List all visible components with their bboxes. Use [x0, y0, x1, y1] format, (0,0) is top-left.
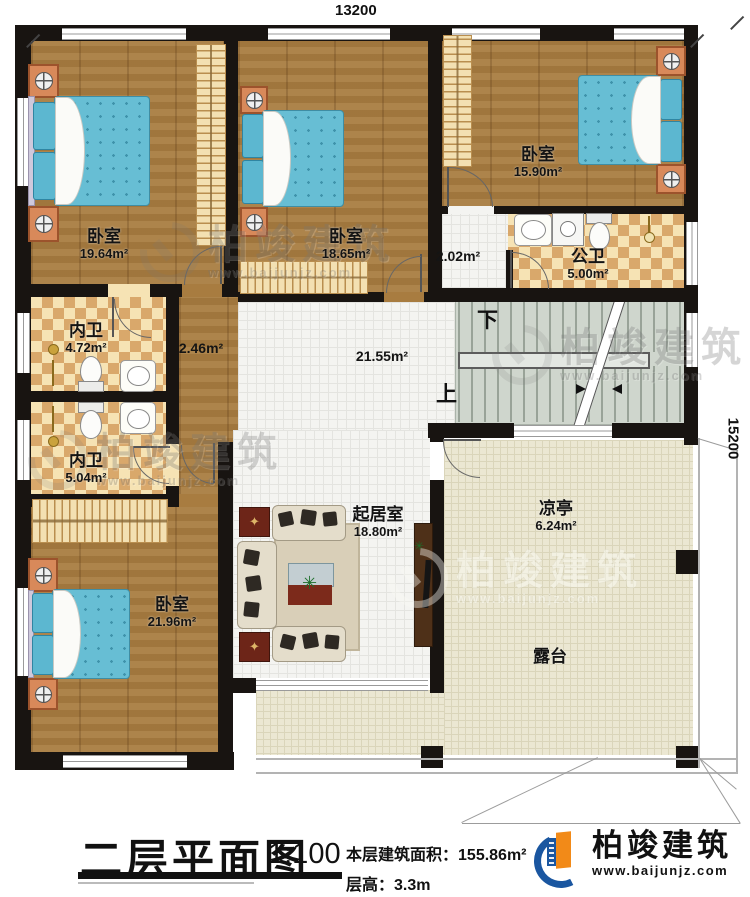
towel-ring — [48, 344, 59, 355]
title-leader-line — [461, 757, 598, 823]
sliding-door — [256, 680, 428, 691]
wall — [612, 423, 684, 438]
towel-bar — [52, 406, 54, 432]
bed-pillow — [32, 593, 54, 633]
title-underline-light — [78, 882, 254, 884]
wall — [230, 678, 256, 693]
railing-line — [256, 772, 738, 774]
window — [268, 28, 390, 40]
wardrobe — [443, 35, 472, 167]
toilet — [78, 381, 104, 392]
pendant-light — [644, 232, 655, 243]
wardrobe — [32, 499, 168, 543]
railing-line — [256, 758, 738, 760]
wall — [15, 391, 166, 402]
room-label-bedroom3: 卧室15.90m² — [514, 146, 562, 179]
door-gap — [179, 494, 218, 507]
sofa — [237, 541, 277, 629]
bed-pillow — [242, 114, 264, 158]
wardrobe — [240, 261, 368, 294]
nightstand — [28, 558, 58, 592]
brand-name: 柏竣建筑 — [592, 830, 732, 863]
title-leader-line — [462, 823, 740, 824]
bed-pillow — [32, 635, 54, 675]
plant-icon: ✳ — [302, 574, 317, 592]
floor-area-label: 本层建筑面积：155.86m² — [346, 841, 527, 865]
pillar — [676, 746, 698, 768]
dimension-tick — [730, 16, 744, 30]
railing-line — [736, 450, 738, 772]
nightstand — [28, 678, 58, 710]
room-label-ensuite2: 内卫5.04m² — [65, 452, 106, 485]
stair-break-arrow-right — [612, 384, 622, 394]
area-label-vestibule: 2.02m² — [436, 248, 480, 264]
wall — [224, 25, 238, 297]
stair-break-arrow-left — [576, 384, 586, 394]
floor-plan-page: ✦ ✦ ✳ ✳ 柏竣建筑 www.baijunjz.com 柏竣建筑 www.b… — [0, 0, 750, 897]
title-leader-line — [699, 758, 741, 824]
floor-height-label: 层高：3.3m — [346, 871, 430, 895]
brand-logo-icon — [534, 830, 586, 880]
wardrobe — [196, 44, 226, 246]
dimension-top: 13200 — [335, 2, 377, 19]
stair-up-label: 上 — [436, 378, 457, 408]
washing-machine — [552, 213, 584, 246]
door-gap — [108, 284, 150, 297]
bed-pillow — [660, 121, 682, 162]
brand-website: www.baijunjz.com — [592, 863, 732, 878]
title-underline — [78, 872, 342, 879]
room-label-ensuite1: 内卫4.72m² — [65, 322, 106, 355]
brand-logo: 柏竣建筑 www.baijunjz.com — [534, 830, 732, 880]
bed-pillow — [33, 152, 56, 200]
wall — [430, 425, 444, 442]
toilet — [80, 410, 102, 439]
stair-handrail — [458, 352, 650, 369]
towel-bar — [52, 360, 54, 386]
window — [62, 28, 186, 40]
window — [614, 28, 684, 40]
room-label-living-room: 起居室18.80m² — [353, 506, 404, 539]
bed-pillow — [242, 160, 264, 204]
area-label-hall: 21.55m² — [356, 348, 408, 364]
sofa — [272, 626, 346, 662]
vestibule-floor — [442, 206, 508, 288]
nightstand — [656, 164, 686, 194]
door-gap — [448, 206, 494, 214]
pillar — [421, 746, 443, 768]
towel-ring — [48, 436, 59, 447]
nightstand — [28, 64, 59, 98]
nightstand — [240, 207, 268, 237]
window — [17, 313, 30, 373]
room-label-pavilion: 凉亭6.24m² — [535, 500, 576, 533]
dimension-right: 15200 — [724, 418, 741, 460]
stair-lower-flight — [458, 366, 682, 422]
nightstand — [28, 206, 59, 242]
door-gap — [182, 284, 222, 297]
bed-sheet — [631, 76, 661, 164]
plant-icon: ✳ — [414, 540, 424, 552]
toilet — [589, 222, 610, 250]
bed-pillow — [33, 102, 56, 150]
window — [17, 420, 30, 480]
room-label-public-bath: 公卫5.00m² — [567, 248, 608, 281]
room-label-bedroom1: 卧室19.64m² — [80, 228, 128, 261]
wall — [218, 442, 233, 752]
nightstand — [656, 46, 686, 76]
window — [514, 425, 612, 437]
sink — [514, 214, 552, 246]
terrace-strip-floor — [256, 690, 444, 755]
sink — [120, 360, 156, 392]
room-label-bedroom4: 卧室21.96m² — [148, 596, 196, 629]
terrace-floor — [444, 440, 693, 755]
window — [686, 313, 698, 367]
window — [63, 755, 187, 768]
sofa — [272, 505, 346, 541]
area-label-corridor: 2.46m² — [179, 340, 223, 356]
hall-floor — [238, 302, 455, 430]
corner-cabinet: ✦ — [239, 507, 270, 537]
room-label-bedroom2: 卧室18.65m² — [322, 228, 370, 261]
stair-down-label: 下 — [477, 304, 498, 334]
door-gap — [384, 292, 424, 302]
scale-label: 1:100 — [268, 838, 341, 871]
railing-line — [698, 438, 700, 768]
room-label-terrace: 露台 — [533, 648, 567, 667]
pillar — [676, 550, 698, 574]
window — [686, 222, 698, 285]
sink — [120, 402, 156, 434]
corner-cabinet: ✦ — [239, 632, 270, 662]
wall — [428, 288, 698, 302]
bed-pillow — [660, 79, 682, 120]
